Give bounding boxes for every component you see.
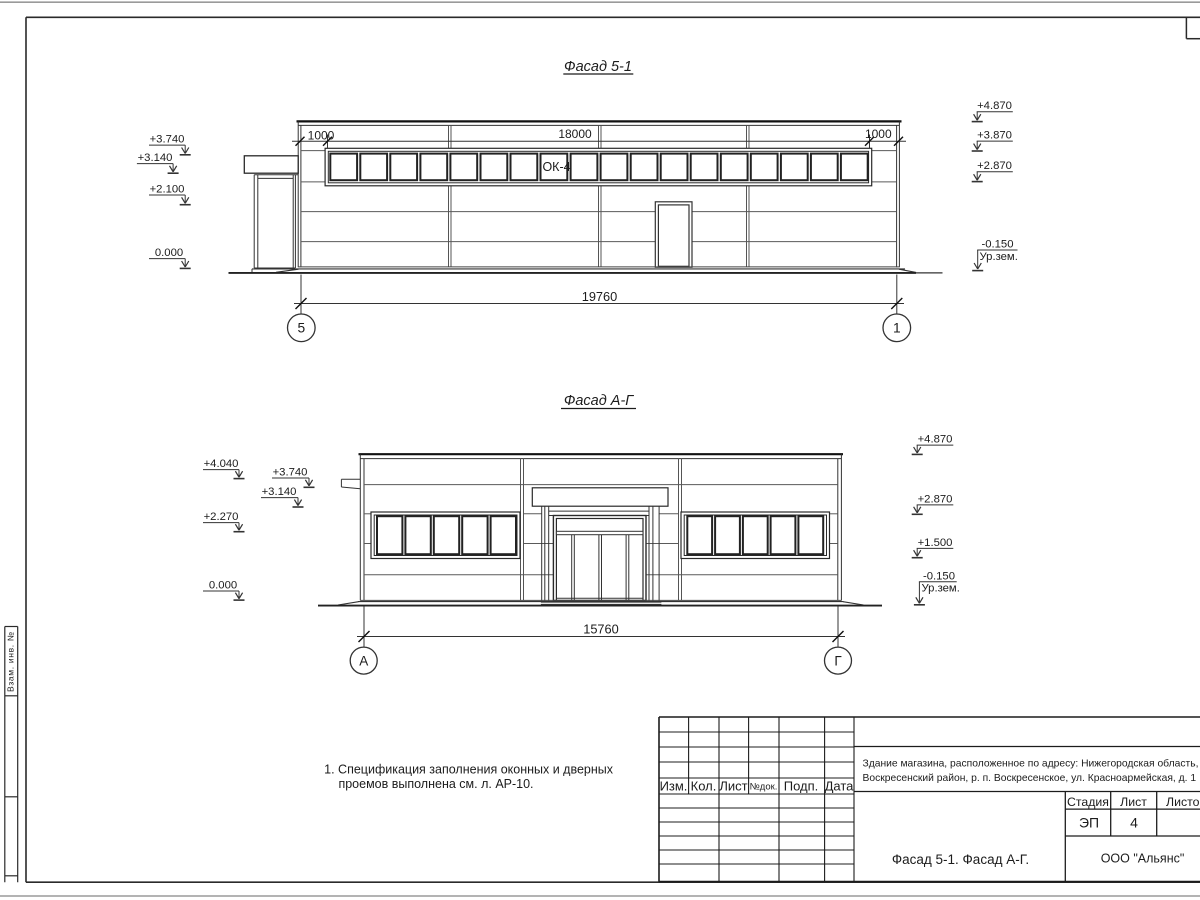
svg-text:1000: 1000 [308, 129, 335, 143]
svg-text:Фасад 5-1. Фасад А-Г.: Фасад 5-1. Фасад А-Г. [892, 852, 1029, 867]
svg-text:Воскресенский район, р. п. Вос: Воскресенский район, р. п. Воскресенское… [863, 773, 1197, 784]
svg-text:ОК-4: ОК-4 [542, 160, 570, 174]
svg-text:ЭП: ЭП [1079, 815, 1099, 831]
svg-text:Подп.: Подп. [784, 779, 819, 794]
svg-text:+3.140: +3.140 [138, 152, 173, 164]
svg-text:+2.870: +2.870 [977, 160, 1012, 172]
svg-text:Дата: Дата [825, 779, 855, 794]
svg-text:Кол.: Кол. [691, 779, 717, 794]
svg-text:+2.270: +2.270 [204, 511, 239, 523]
svg-text:Г: Г [834, 653, 842, 668]
svg-text:15760: 15760 [583, 622, 619, 637]
svg-text:Лист: Лист [1120, 795, 1147, 809]
svg-text:0.000: 0.000 [209, 580, 237, 592]
svg-text:+4.040: +4.040 [204, 458, 239, 470]
svg-text:18000: 18000 [558, 127, 592, 141]
svg-text:5: 5 [297, 321, 305, 336]
svg-text:Изм.: Изм. [660, 779, 688, 794]
svg-text:Ур.зем.: Ур.зем. [922, 583, 960, 595]
svg-text:4: 4 [1130, 815, 1138, 831]
svg-text:Здание магазина, расположенное: Здание магазина, расположенное по адресу… [863, 758, 1199, 770]
svg-text:Фасад 5-1: Фасад 5-1 [564, 59, 632, 75]
svg-text:+3.740: +3.740 [273, 467, 308, 479]
svg-text:-0.150: -0.150 [981, 239, 1013, 251]
svg-text:1. Спецификация заполнения око: 1. Спецификация заполнения оконных и две… [324, 763, 614, 777]
svg-text:Листов: Листов [1166, 795, 1200, 809]
svg-text:Стадия: Стадия [1067, 795, 1109, 809]
svg-text:+3.740: +3.740 [150, 134, 185, 146]
svg-text:ООО "Альянс": ООО "Альянс" [1101, 852, 1185, 866]
svg-text:+3.140: +3.140 [262, 486, 297, 498]
svg-text:Взам. инв. №: Взам. инв. № [6, 632, 16, 692]
svg-text:Ур.зем.: Ур.зем. [980, 251, 1018, 263]
svg-text:+4.870: +4.870 [977, 100, 1012, 112]
svg-text:-0.150: -0.150 [923, 570, 955, 582]
svg-text:Фасад А-Г: Фасад А-Г [564, 393, 634, 409]
svg-text:проемов выполнена см. л. АР-10: проемов выполнена см. л. АР-10. [338, 777, 533, 791]
svg-text:1: 1 [893, 321, 901, 336]
svg-text:19760: 19760 [582, 289, 618, 304]
svg-text:+2.870: +2.870 [918, 494, 953, 506]
svg-text:+4.870: +4.870 [918, 434, 953, 446]
svg-text:0.000: 0.000 [155, 247, 183, 259]
svg-text:+1.500: +1.500 [918, 537, 953, 549]
svg-text:1000: 1000 [865, 127, 892, 141]
svg-text:А: А [359, 653, 368, 668]
svg-text:№док.: №док. [750, 782, 778, 793]
svg-text:Лист: Лист [719, 779, 747, 794]
svg-text:+2.100: +2.100 [150, 184, 185, 196]
svg-text:+3.870: +3.870 [977, 130, 1012, 142]
